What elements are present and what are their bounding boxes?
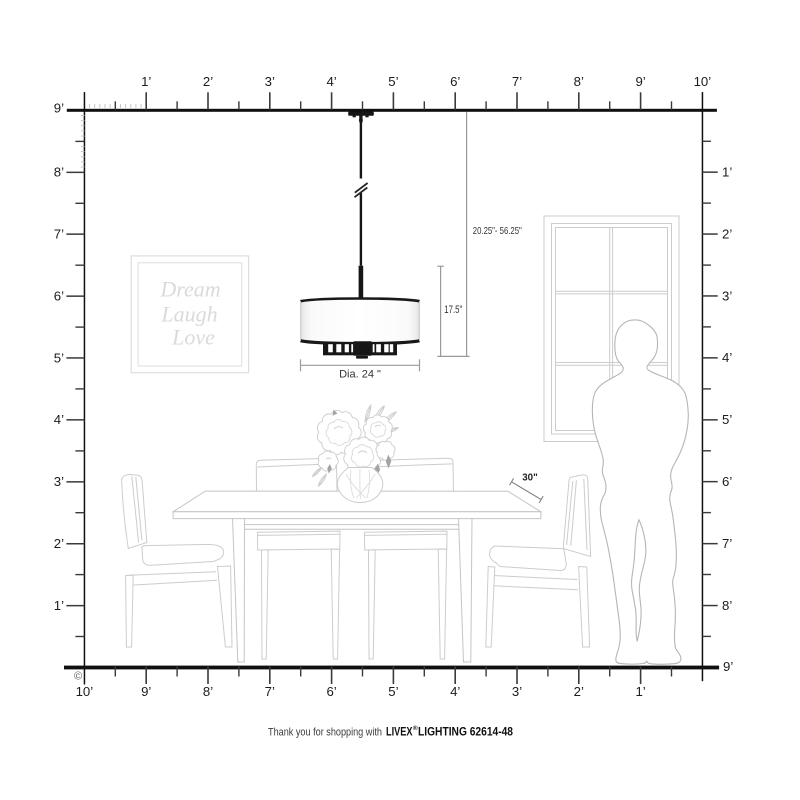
svg-text:4’: 4’ <box>450 684 460 699</box>
svg-text:2’: 2’ <box>203 74 213 89</box>
svg-text:1’: 1’ <box>141 74 151 89</box>
svg-text:4’: 4’ <box>326 74 336 89</box>
svg-text:1’: 1’ <box>635 684 645 699</box>
svg-text:6’: 6’ <box>722 474 732 489</box>
svg-text:5’: 5’ <box>722 412 732 427</box>
svg-text:30": 30" <box>522 472 538 484</box>
svg-text:7’: 7’ <box>722 536 732 551</box>
svg-text:3’: 3’ <box>512 684 522 699</box>
svg-text:LIGHTING 62614-48: LIGHTING 62614-48 <box>418 725 513 739</box>
svg-text:4’: 4’ <box>54 412 64 427</box>
svg-text:7’: 7’ <box>54 227 64 242</box>
svg-text:9’: 9’ <box>723 659 733 674</box>
svg-text:5’: 5’ <box>388 74 398 89</box>
svg-text:Laugh: Laugh <box>160 302 217 327</box>
svg-text:3’: 3’ <box>722 288 732 303</box>
svg-text:4’: 4’ <box>722 350 732 365</box>
svg-text:2’: 2’ <box>574 684 584 699</box>
svg-text:9’: 9’ <box>54 101 64 116</box>
svg-text:17.5": 17.5" <box>444 304 462 316</box>
svg-text:Love: Love <box>171 325 215 350</box>
svg-text:9’: 9’ <box>635 74 645 89</box>
svg-text:6’: 6’ <box>326 684 336 699</box>
svg-text:6’: 6’ <box>54 288 64 303</box>
svg-text:7’: 7’ <box>512 74 522 89</box>
svg-text:3’: 3’ <box>265 74 275 89</box>
svg-text:2’: 2’ <box>722 226 732 241</box>
svg-text:9’: 9’ <box>141 684 151 699</box>
svg-text:8’: 8’ <box>203 684 213 699</box>
svg-text:LIVEX: LIVEX <box>386 725 413 739</box>
svg-text:Dream: Dream <box>159 277 220 302</box>
svg-text:20.25"- 56.25": 20.25"- 56.25" <box>473 225 522 237</box>
svg-text:1’: 1’ <box>722 165 732 180</box>
svg-text:10’: 10’ <box>694 74 712 89</box>
svg-text:3’: 3’ <box>54 474 64 489</box>
svg-text:8’: 8’ <box>722 598 732 613</box>
svg-text:6’: 6’ <box>450 74 460 89</box>
svg-text:2’: 2’ <box>54 536 64 551</box>
svg-text:8’: 8’ <box>574 74 584 89</box>
svg-text:5’: 5’ <box>388 684 398 699</box>
svg-text:5’: 5’ <box>54 350 64 365</box>
svg-text:©: © <box>74 670 82 682</box>
svg-text:Dia. 24 ": Dia. 24 " <box>339 369 381 381</box>
svg-text:8’: 8’ <box>54 165 64 180</box>
svg-text:Thank you for shopping with: Thank you for shopping with <box>268 727 382 739</box>
svg-text:7’: 7’ <box>265 684 275 699</box>
svg-text:10’: 10’ <box>76 684 94 699</box>
svg-text:1’: 1’ <box>54 598 64 613</box>
